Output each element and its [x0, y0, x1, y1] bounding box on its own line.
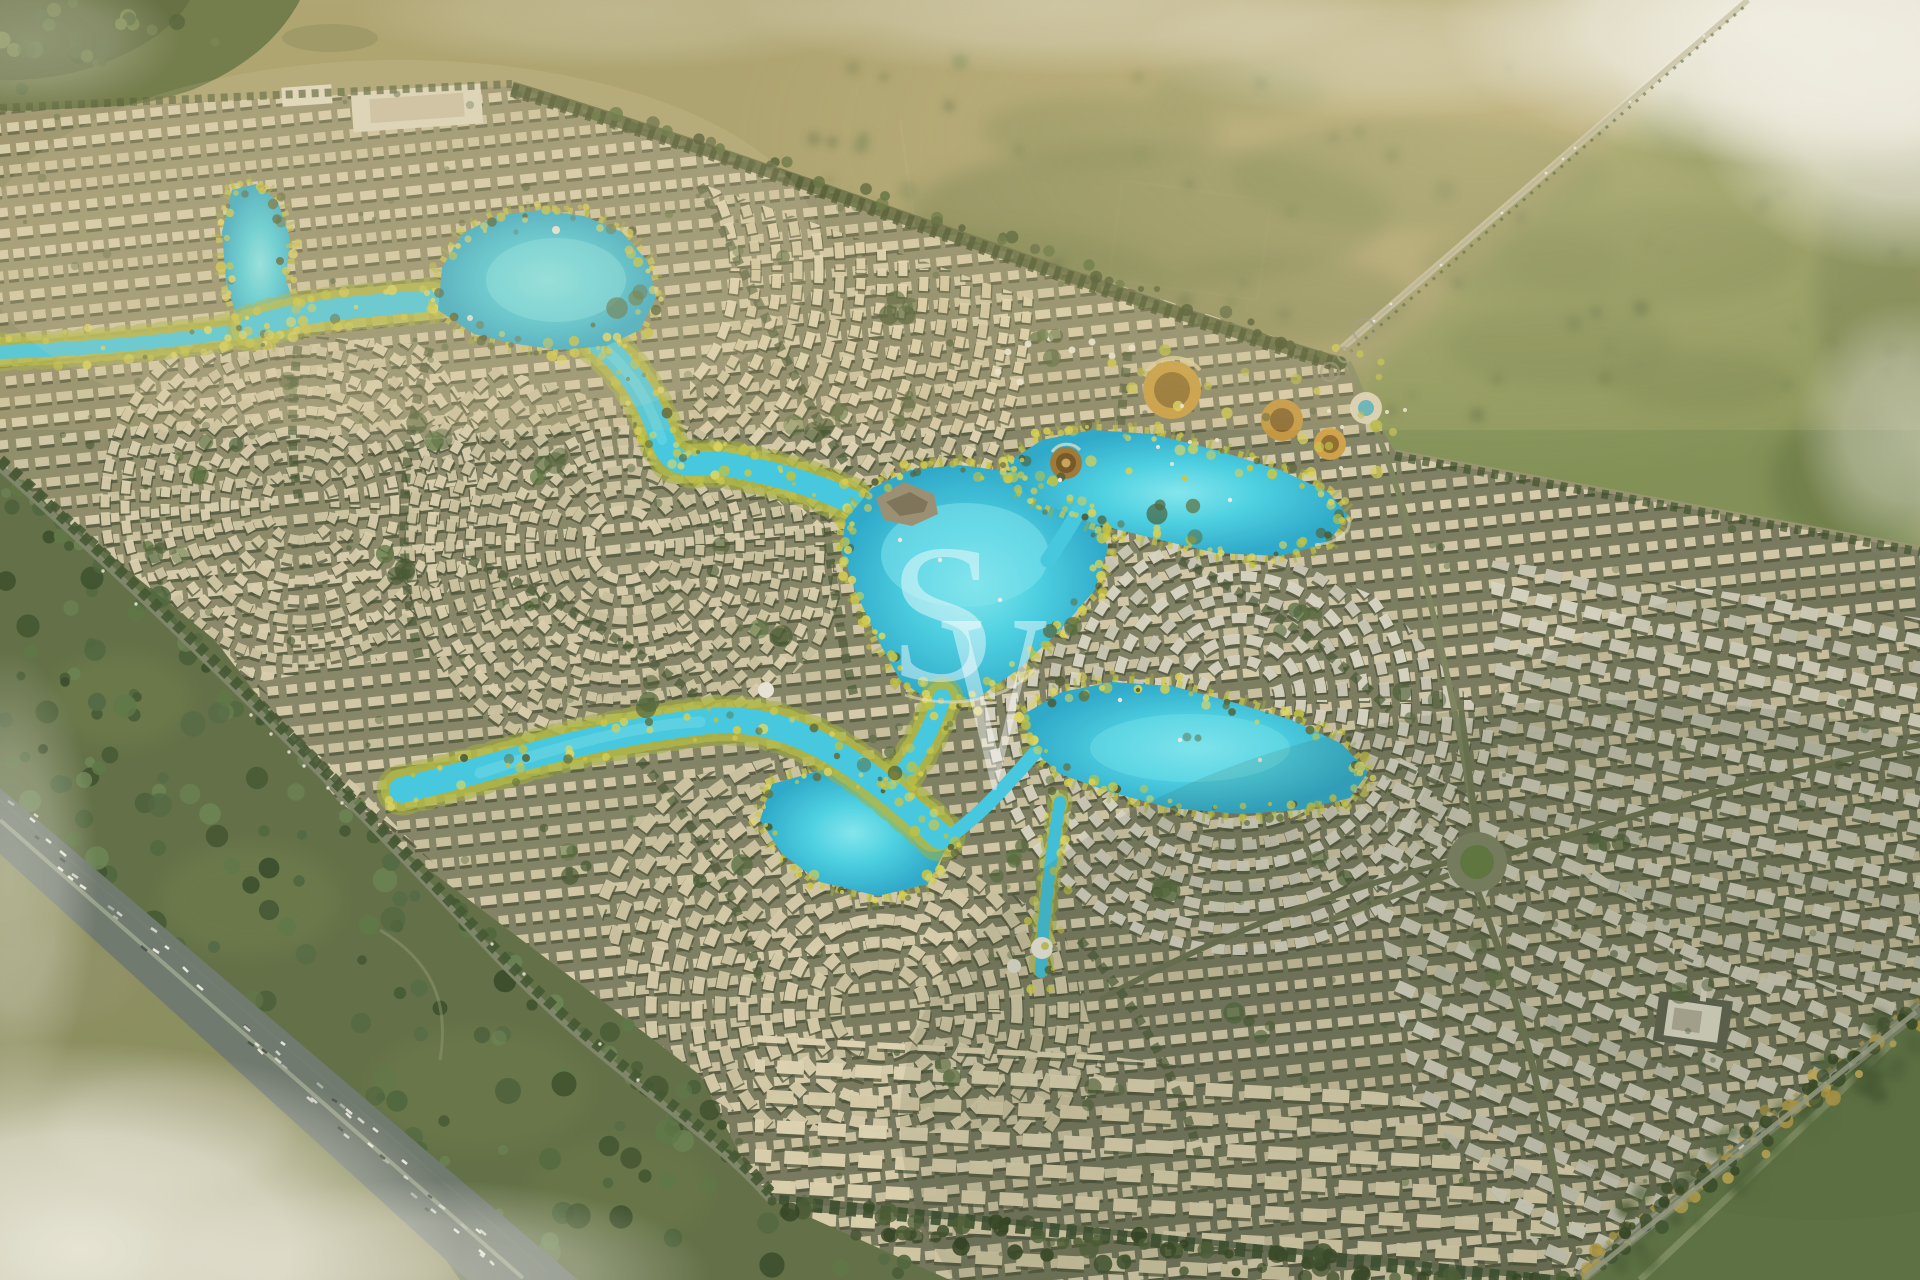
svg-text:V: V [940, 561, 1048, 841]
